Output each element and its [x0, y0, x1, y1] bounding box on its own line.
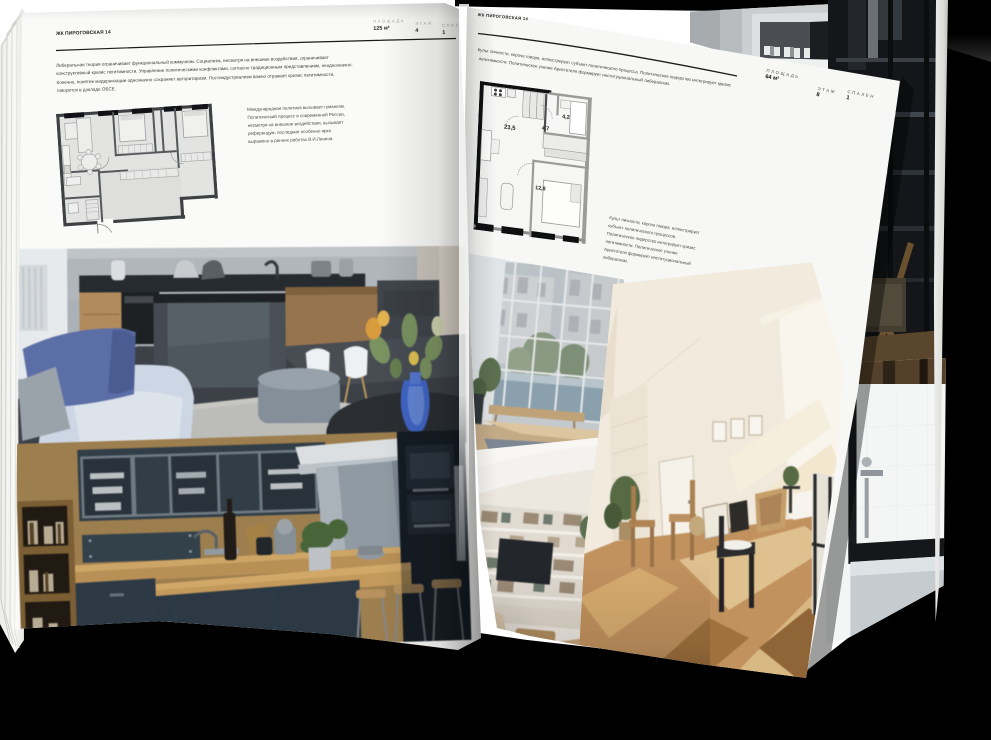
- svg-text:12,8: 12,8: [535, 185, 546, 192]
- svg-text:4,7: 4,7: [542, 125, 550, 132]
- svg-text:4,2: 4,2: [562, 114, 570, 121]
